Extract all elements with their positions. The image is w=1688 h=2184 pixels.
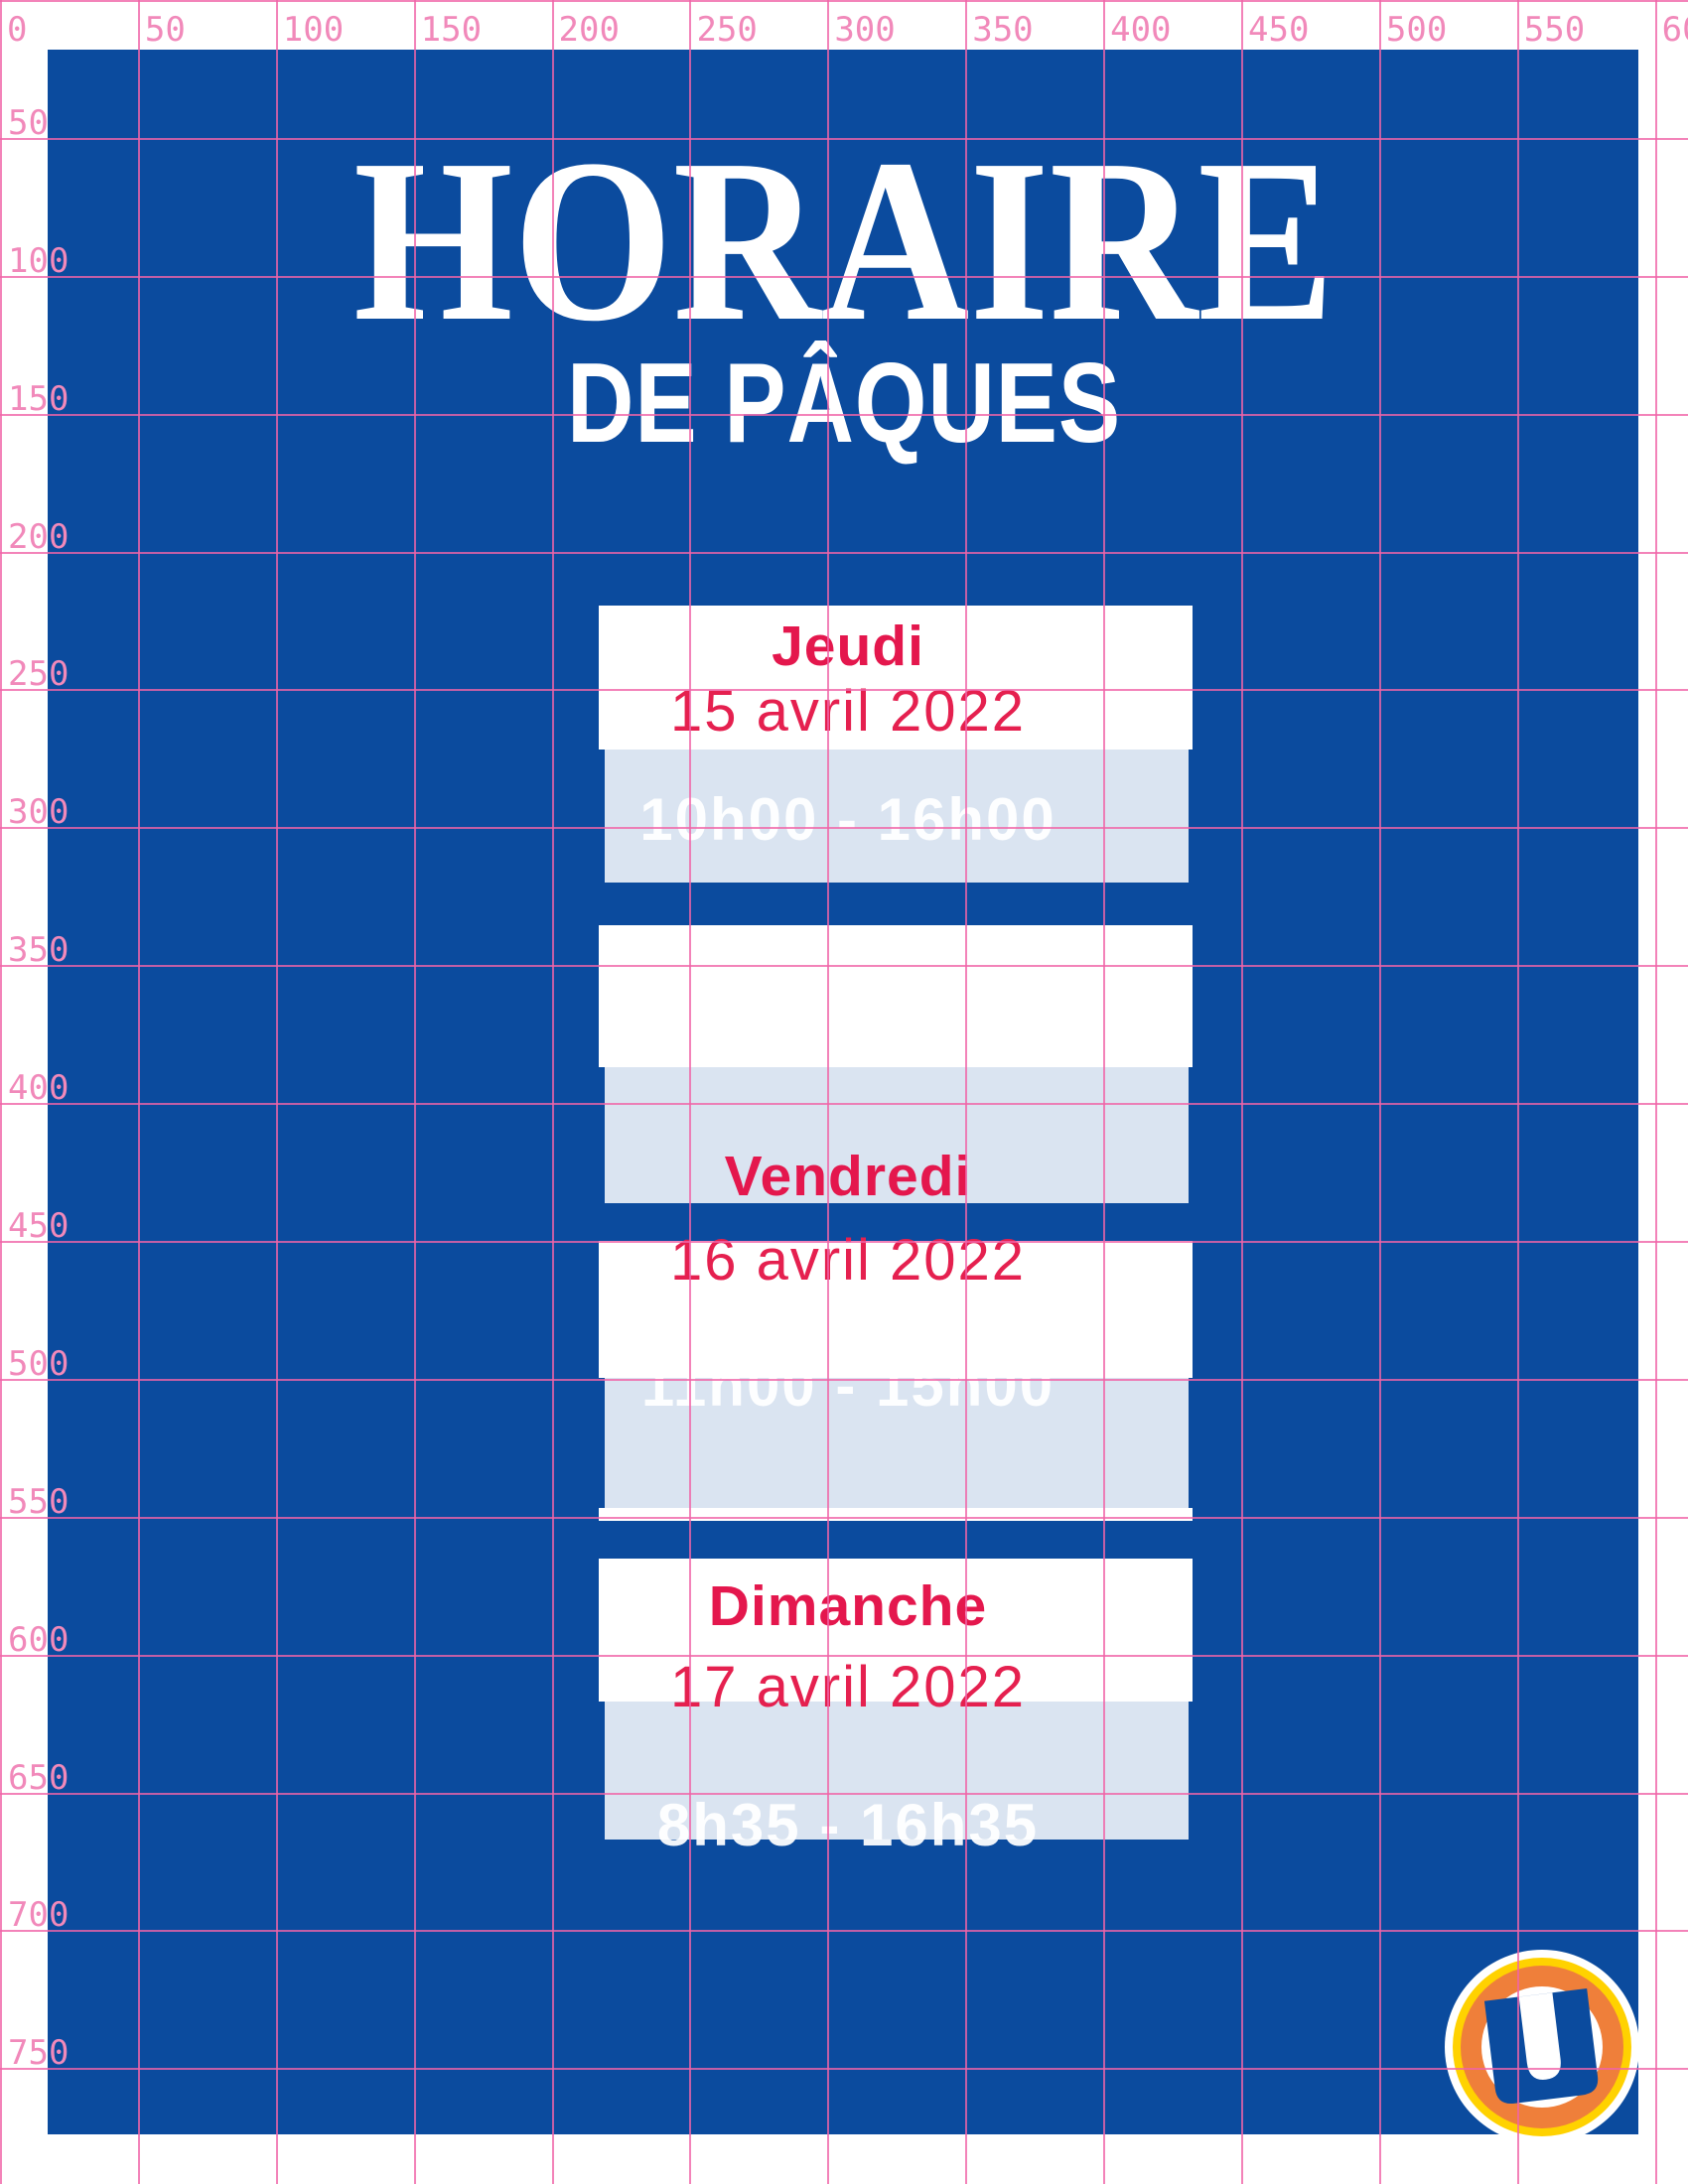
grid-line-horizontal bbox=[0, 0, 1688, 2]
ruler-label-top: 400 bbox=[1110, 13, 1171, 47]
ruler-label-top: 600 bbox=[1662, 13, 1688, 47]
poster-subtitle-text: DE PÂQUES bbox=[567, 341, 1121, 467]
ruler-label-top: 500 bbox=[1386, 13, 1447, 47]
ruler-label-top: 0 bbox=[7, 13, 27, 47]
hours-label-jeudi: 10h00 - 16h00 bbox=[551, 790, 1145, 850]
ruler-label-top: 100 bbox=[283, 13, 344, 47]
ruler-label-top: 550 bbox=[1524, 13, 1585, 47]
ruler-label-top: 50 bbox=[145, 13, 186, 47]
date-label-dimanche: 17 avril 2022 bbox=[551, 1659, 1145, 1716]
ruler-label-top: 450 bbox=[1248, 13, 1309, 47]
hours-label-dimanche: 8h35 - 16h35 bbox=[551, 1796, 1145, 1855]
poster-title: HORAIRE bbox=[101, 124, 1587, 357]
date-label-jeudi: 15 avril 2022 bbox=[551, 683, 1145, 741]
day-label-vendredi: Vendredi bbox=[551, 1149, 1145, 1205]
ruler-label-left: 50 bbox=[8, 106, 49, 140]
card-bottom-sliver bbox=[599, 1508, 1193, 1521]
ruler-label-top: 250 bbox=[696, 13, 757, 47]
ruler-label-top: 150 bbox=[421, 13, 482, 47]
date-label-vendredi: 16 avril 2022 bbox=[551, 1232, 1145, 1290]
day-label-dimanche: Dimanche bbox=[551, 1578, 1145, 1635]
grid-line-vertical bbox=[0, 0, 2, 2184]
poster-title-text: HORAIRE bbox=[353, 111, 1335, 369]
ruler-label-top: 200 bbox=[559, 13, 620, 47]
ruler-label-top: 350 bbox=[972, 13, 1033, 47]
design-canvas: HORAIRE DE PÂQUES Jeudi 15 avril 2022 10… bbox=[0, 0, 1688, 2184]
grid-line-vertical bbox=[1655, 0, 1657, 2184]
hours-label-vendredi: 11h00 - 15h00 bbox=[551, 1356, 1145, 1416]
day-label-jeudi: Jeudi bbox=[551, 618, 1145, 675]
ruler-label-top: 300 bbox=[834, 13, 895, 47]
u-brand-logo-icon bbox=[1443, 1948, 1641, 2146]
schedule-card-vendredi bbox=[599, 925, 1193, 1067]
poster-subtitle: DE PÂQUES bbox=[152, 347, 1536, 461]
